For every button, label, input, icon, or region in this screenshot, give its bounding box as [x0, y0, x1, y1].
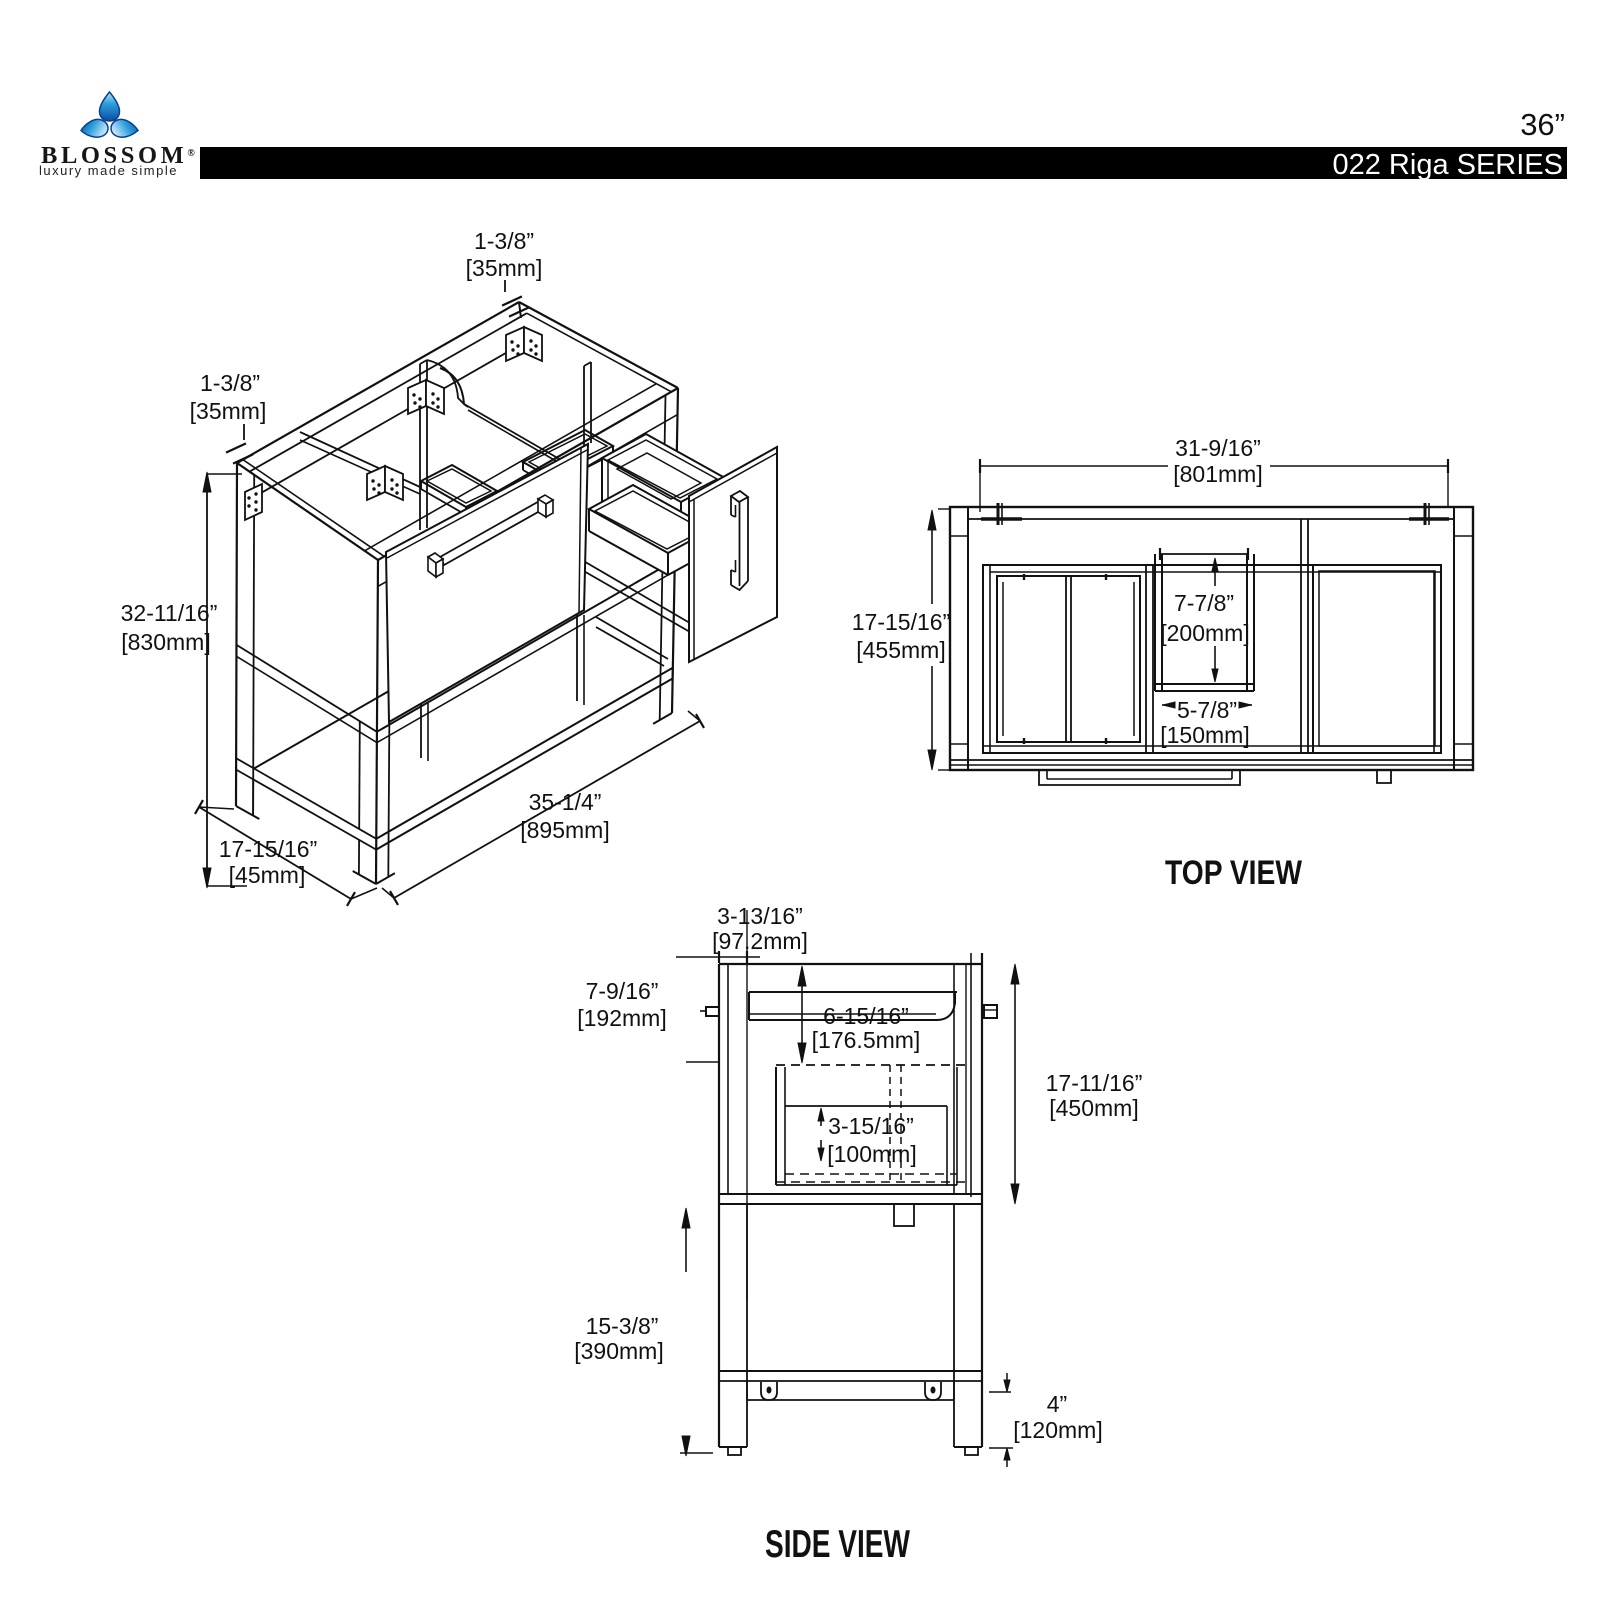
svg-text:[895mm]: [895mm]: [520, 817, 609, 843]
svg-text:[100mm]: [100mm]: [827, 1141, 916, 1167]
svg-text:6-15/16”: 6-15/16”: [823, 1003, 909, 1029]
svg-text:[455mm]: [455mm]: [856, 637, 945, 663]
svg-text:15-3/8”: 15-3/8”: [586, 1313, 659, 1339]
svg-text:1-3/8”: 1-3/8”: [200, 370, 260, 396]
svg-text:[176.5mm]: [176.5mm]: [812, 1027, 921, 1053]
svg-text:SIDE VIEW: SIDE VIEW: [765, 1523, 910, 1566]
svg-text:[35mm]: [35mm]: [190, 398, 267, 424]
svg-text:17-15/16”: 17-15/16”: [219, 836, 317, 862]
svg-text:3-13/16”: 3-13/16”: [717, 903, 803, 929]
svg-text:[801mm]: [801mm]: [1173, 461, 1262, 487]
svg-text:[45mm]: [45mm]: [229, 862, 306, 888]
svg-text:17-11/16”: 17-11/16”: [1046, 1070, 1143, 1096]
svg-text:5-7/8”: 5-7/8”: [1177, 697, 1237, 723]
svg-text:31-9/16”: 31-9/16”: [1175, 435, 1261, 461]
svg-text:3-15/16”: 3-15/16”: [828, 1113, 914, 1139]
svg-text:7-9/16”: 7-9/16”: [586, 978, 659, 1004]
svg-text:4”: 4”: [1047, 1391, 1067, 1417]
svg-text:TOP VIEW: TOP VIEW: [1165, 854, 1303, 892]
svg-text:35-1/4”: 35-1/4”: [529, 789, 602, 815]
svg-text:7-7/8”: 7-7/8”: [1174, 590, 1234, 616]
svg-text:[192mm]: [192mm]: [577, 1005, 666, 1031]
svg-text:[830mm]: [830mm]: [121, 629, 210, 655]
svg-text:[120mm]: [120mm]: [1013, 1417, 1102, 1443]
svg-text:[97.2mm]: [97.2mm]: [712, 928, 808, 954]
svg-text:32-11/16”: 32-11/16”: [121, 600, 218, 626]
svg-text:[35mm]: [35mm]: [466, 255, 543, 281]
svg-text:17-15/16”: 17-15/16”: [852, 609, 950, 635]
svg-text:[200mm]: [200mm]: [1160, 620, 1249, 646]
svg-text:[450mm]: [450mm]: [1049, 1095, 1138, 1121]
svg-text:1-3/8”: 1-3/8”: [474, 228, 534, 254]
svg-text:[390mm]: [390mm]: [574, 1338, 663, 1364]
svg-text:[150mm]: [150mm]: [1160, 722, 1249, 748]
